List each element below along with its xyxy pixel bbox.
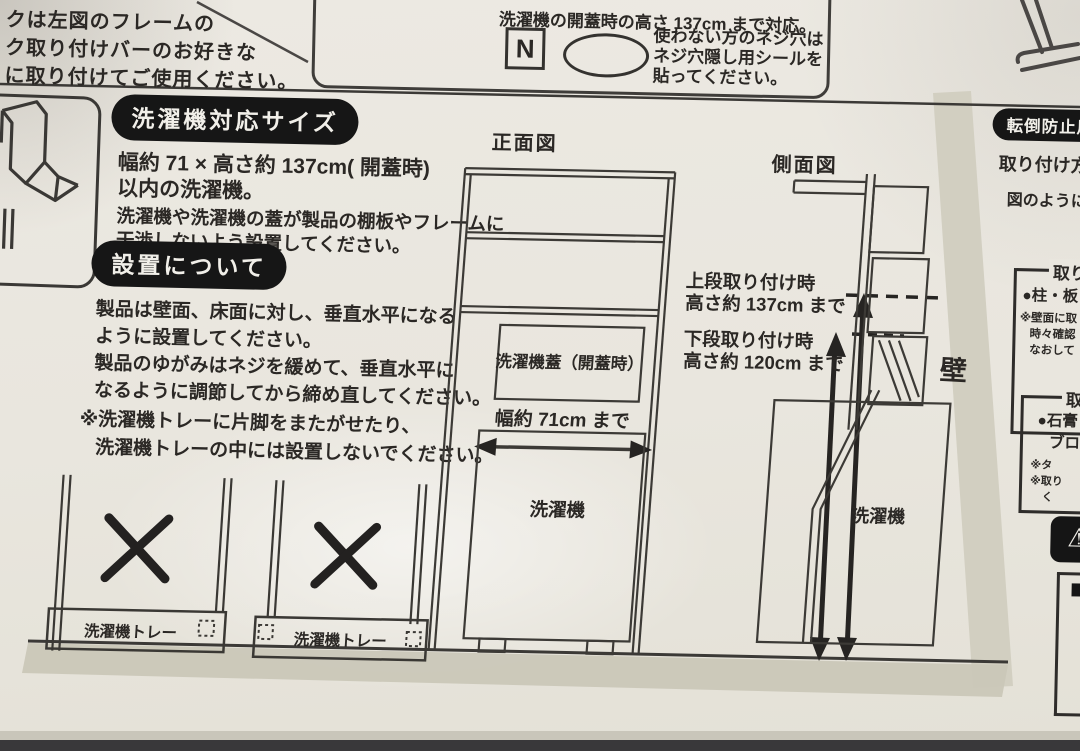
table-background (0, 740, 1080, 751)
side-view-diagram: 洗濯機 (731, 158, 1013, 672)
screw-n-text: N (515, 33, 534, 63)
size-section-badge: 洗濯機対応サイズ (111, 94, 359, 145)
hook-icon (0, 97, 93, 279)
box-lead: ●柱・板 (1022, 283, 1080, 307)
warning-icon: ⚠ (1067, 522, 1080, 554)
label-line: 高さ約 120cm まで (683, 350, 844, 375)
upper-mount-label: 上段取り付け時 高さ約 137cm まで (685, 270, 846, 317)
wall-label: 壁 (939, 348, 968, 388)
box-header: 取り (1049, 259, 1080, 285)
label-line: 高さ約 137cm まで (685, 292, 846, 317)
screw-box-note: 使わない方のネジ穴は ネジ穴隠し用シールを 貼ってください。 (652, 26, 823, 90)
warning-bar: ⚠ (1050, 516, 1080, 563)
cross-mark-icon (105, 518, 169, 579)
box-lead: ●石膏 (1037, 408, 1080, 432)
tray-label: 洗濯機トレー (83, 621, 177, 642)
screw-callout-box: 洗濯機の開蓋時の高さ 137cm まで対応。 N 使わない方のネジ穴は ネジ穴隠… (311, 0, 833, 99)
tray-warning-text: ※洗濯機トレーに片脚をまたがせたり、 洗濯機トレーの中には設置しないでください。 (79, 406, 495, 471)
tray-label: 洗濯機トレー (293, 630, 387, 651)
box-note: く (1042, 488, 1080, 506)
box-header: 取 (1062, 386, 1080, 412)
paper-edge (0, 731, 1080, 740)
box-lead: ブロ (1049, 431, 1080, 455)
box-note: なおして (1029, 341, 1080, 359)
frame-corner-drawing (1018, 0, 1080, 70)
tray-prohibited-diagrams: 洗濯機トレー 洗濯機トレー (15, 468, 453, 682)
machine-box (464, 430, 646, 641)
width-arrow (473, 437, 652, 459)
screw-n-label: N (505, 27, 546, 70)
install-section-badge: 設置について (91, 240, 287, 290)
front-view-title: 正面図 (491, 126, 558, 156)
cropped-box-3 (1054, 572, 1080, 717)
manual-photo: クは左図のフレームの ク取り付けバーのお好きな に取り付けてご使用ください。 洗… (0, 0, 1080, 751)
machine-label: 洗濯機 (850, 505, 905, 527)
figure-note: 図のように棚 (1006, 186, 1080, 212)
box-note: ※取り (1030, 472, 1080, 490)
mount-method-label: 取り付け方法 (998, 150, 1080, 178)
black-square-bullet (1071, 583, 1080, 596)
top-left-note: クは左図のフレームの ク取り付けバーのお好きな に取り付けてご使用ください。 (4, 6, 300, 96)
front-view-diagram: 洗濯機蓋（開蓋時） 幅約 71cm まで 洗濯機 (419, 158, 698, 672)
cross-mark-icon (315, 526, 377, 585)
install-section-text: 製品は壁面、床面に対し、垂直水平になる ように設置してください。 製品のゆがみは… (94, 296, 494, 413)
anti-tip-badge: 転倒防止用木ネ (992, 108, 1080, 143)
note-line: 貼ってください。 (652, 66, 822, 90)
lower-mount-label: 下段取り付け時 高さ約 120cm まで (683, 328, 844, 375)
machine-label: 洗濯機 (529, 499, 587, 521)
wall-type-box-2: 取 ●石膏 ブロ ※タ ※取り く (1018, 395, 1080, 516)
width-label: 幅約 71cm まで (494, 407, 631, 433)
lid-label: 洗濯機蓋（開蓋時） (495, 351, 645, 374)
hook-illustration-box (0, 92, 102, 289)
tray-diagram-straddle: 洗濯機トレー (46, 475, 234, 655)
screw-hole-oval-icon (563, 32, 650, 78)
tray-diagram-inside: 洗濯機トレー (253, 480, 436, 660)
